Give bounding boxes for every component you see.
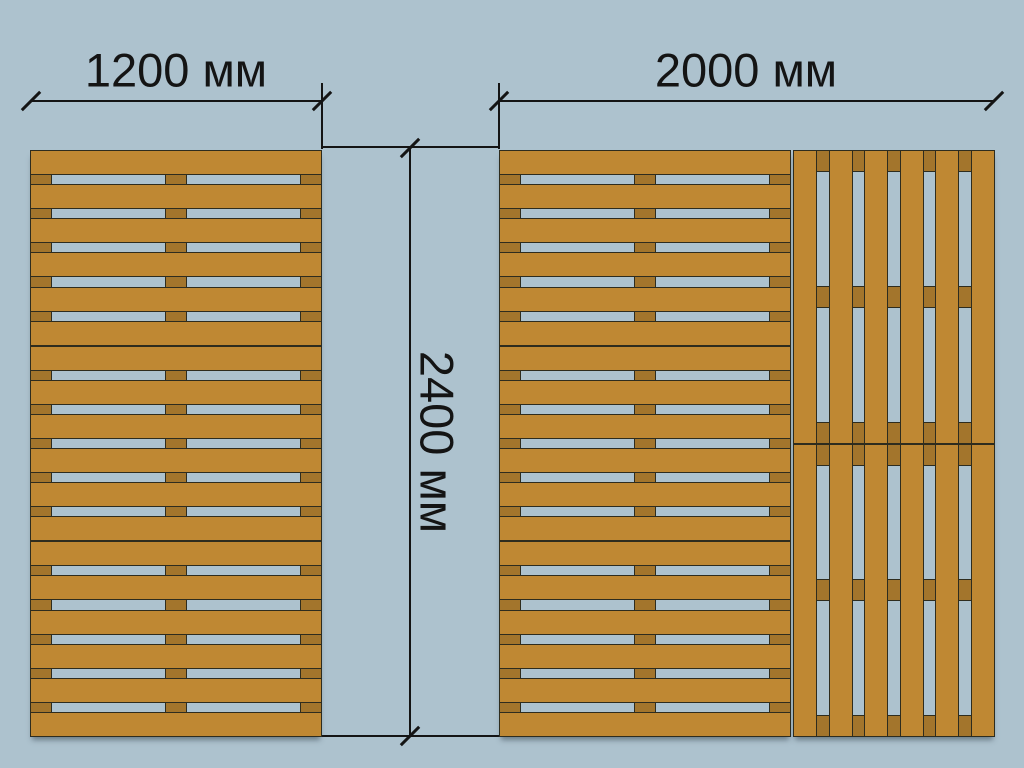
pallet-stack-right-vertical [793, 150, 995, 737]
deck-board [499, 287, 791, 312]
deck-board [30, 321, 322, 346]
deck-board [30, 414, 322, 439]
deck-board [829, 150, 853, 444]
dimension-label-height: 2400 мм [414, 351, 461, 533]
stringer [30, 150, 52, 346]
deck-board [971, 444, 995, 738]
deck-board [30, 346, 322, 371]
deck-board [864, 150, 888, 444]
deck-board [30, 644, 322, 669]
deck-board [30, 516, 322, 541]
stringer [769, 150, 791, 346]
stringer [793, 444, 995, 466]
pallet-right-stack-horizontal-section [499, 150, 791, 346]
stringer [300, 541, 322, 737]
pallet-stack-right-horizontal [499, 150, 791, 737]
stringer [793, 150, 995, 172]
deck-board [499, 218, 791, 243]
deck-board [793, 150, 817, 444]
deck-board [499, 321, 791, 346]
deck-board [829, 444, 853, 738]
deck-board [30, 678, 322, 703]
deck-board [499, 414, 791, 439]
deck-board [30, 380, 322, 405]
dimension-line-width-left [30, 100, 323, 102]
extension-line-right [498, 83, 500, 149]
stringer [793, 286, 995, 308]
dimension-label-width-left: 1200 мм [85, 47, 267, 94]
stringer [793, 422, 995, 444]
deck-board [30, 610, 322, 635]
stringer [165, 150, 187, 346]
stringer [634, 541, 656, 737]
extension-line-left [321, 83, 323, 149]
stringer [30, 541, 52, 737]
deck-board [971, 150, 995, 444]
stringer [300, 346, 322, 542]
pallet-stack-left [30, 150, 322, 737]
stringer [769, 541, 791, 737]
deck-board [499, 346, 791, 371]
stringer [634, 150, 656, 346]
deck-board [30, 150, 322, 175]
deck-board [30, 482, 322, 507]
deck-board [499, 184, 791, 209]
pallet-right-stack-horizontal-section [499, 541, 791, 737]
deck-board [30, 448, 322, 473]
dimension-label-width-right: 2000 мм [655, 47, 837, 94]
pallet-right-stack-vertical-section [793, 150, 995, 444]
stringer [499, 150, 521, 346]
deck-board [499, 644, 791, 669]
stringer [30, 346, 52, 542]
pallet-right-stack-vertical-section [793, 444, 995, 738]
pallet-left-stack-section [30, 346, 322, 542]
deck-board [900, 444, 924, 738]
stringer [165, 541, 187, 737]
deck-board [935, 444, 959, 738]
dimension-line-width-right [498, 100, 995, 102]
deck-board [499, 516, 791, 541]
pallet-right-stack-horizontal-section [499, 346, 791, 542]
pallet-left-stack-section [30, 150, 322, 346]
dimension-line-height [409, 147, 411, 737]
deck-board [793, 444, 817, 738]
stringer [793, 579, 995, 601]
stringer [499, 541, 521, 737]
pallet-left-stack-section [30, 541, 322, 737]
stringer [634, 346, 656, 542]
deck-board [499, 541, 791, 566]
deck-board [499, 252, 791, 277]
deck-board [30, 575, 322, 600]
deck-board [935, 150, 959, 444]
deck-board [499, 448, 791, 473]
stringer [769, 346, 791, 542]
deck-board [30, 252, 322, 277]
deck-board [30, 287, 322, 312]
deck-board [30, 712, 322, 737]
deck-board [499, 380, 791, 405]
stringer [499, 346, 521, 542]
deck-board [864, 444, 888, 738]
deck-board [499, 482, 791, 507]
deck-board [499, 610, 791, 635]
deck-board [499, 712, 791, 737]
deck-board [30, 218, 322, 243]
stringer [793, 715, 995, 737]
stringer [300, 150, 322, 346]
stringer [165, 346, 187, 542]
deck-board [499, 150, 791, 175]
deck-board [900, 150, 924, 444]
deck-board [499, 575, 791, 600]
deck-board [30, 541, 322, 566]
deck-board [499, 678, 791, 703]
diagram-canvas: 1200 мм 2000 мм 2400 мм [0, 0, 1024, 768]
deck-board [30, 184, 322, 209]
